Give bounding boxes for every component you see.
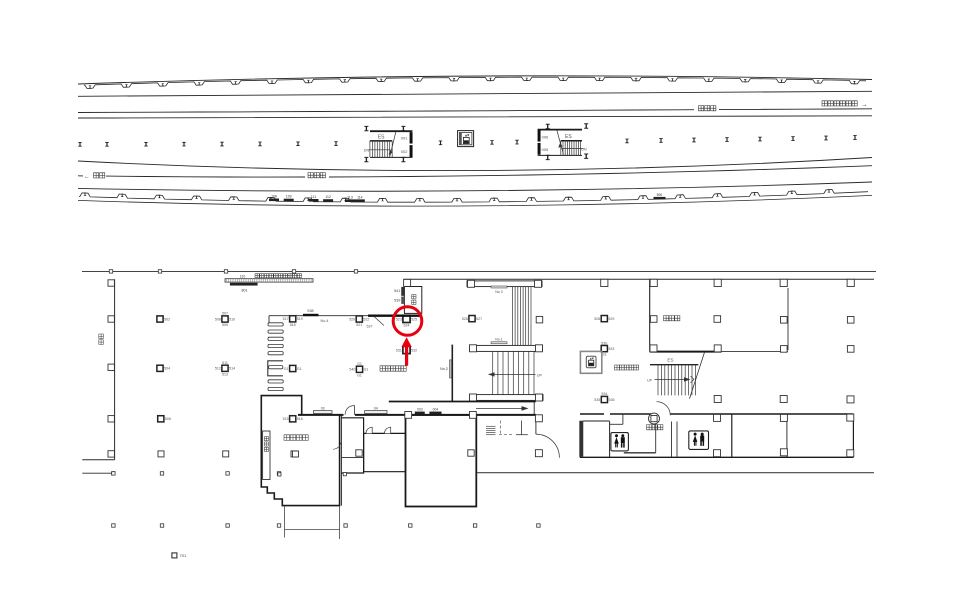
svg-text:529: 529 [608, 317, 614, 321]
svg-text:G1: G1 [602, 353, 607, 357]
svg-text:521: 521 [356, 323, 362, 327]
svg-text:506: 506 [165, 417, 171, 421]
svg-text:ES: ES [565, 134, 572, 140]
svg-text:507: 507 [222, 312, 228, 316]
svg-text:513: 513 [222, 372, 228, 376]
svg-text:004: 004 [433, 407, 439, 411]
svg-text:G1: G1 [357, 362, 362, 366]
svg-text:112: 112 [325, 195, 331, 199]
svg-text:G1: G1 [364, 368, 369, 372]
svg-text:517: 517 [283, 317, 289, 321]
svg-text:539: 539 [394, 298, 400, 302]
svg-text:UP: UP [647, 378, 653, 382]
svg-text:531: 531 [396, 348, 402, 352]
svg-text:801: 801 [242, 289, 248, 293]
svg-text:UP: UP [537, 373, 543, 377]
svg-text:512: 512 [215, 367, 221, 371]
svg-text:114: 114 [357, 195, 363, 199]
svg-text:527: 527 [476, 317, 482, 321]
svg-text:510: 510 [229, 317, 235, 321]
svg-text:003: 003 [417, 407, 423, 411]
svg-text:526: 526 [462, 317, 468, 321]
svg-text:002: 002 [401, 149, 408, 154]
svg-text:DN: DN [364, 149, 370, 153]
svg-text:533: 533 [608, 347, 614, 351]
svg-text:G1: G1 [357, 373, 362, 377]
svg-text:524: 524 [404, 324, 410, 328]
svg-text:540: 540 [349, 368, 355, 372]
svg-text:590: 590 [657, 193, 663, 197]
svg-text:504: 504 [164, 367, 170, 371]
svg-text:ES: ES [378, 135, 385, 141]
svg-text:001: 001 [401, 136, 408, 141]
svg-text:No.4: No.4 [321, 319, 329, 323]
svg-text:No.1: No.1 [495, 338, 503, 342]
svg-text:535: 535 [594, 398, 600, 402]
svg-text:536: 536 [609, 398, 615, 402]
svg-text:←: ← [84, 174, 90, 180]
svg-text:G1: G1 [297, 367, 302, 371]
svg-text:516: 516 [297, 417, 303, 421]
svg-text:515: 515 [283, 417, 289, 421]
svg-text:541: 541 [394, 289, 400, 293]
svg-text:113: 113 [347, 195, 353, 199]
svg-text:108: 108 [271, 195, 277, 199]
svg-text:03: 03 [321, 406, 325, 410]
svg-text:538: 538 [307, 309, 313, 313]
svg-text:537: 537 [367, 325, 373, 329]
svg-text:509: 509 [222, 323, 228, 327]
svg-text:530: 530 [601, 341, 607, 345]
svg-text:532: 532 [411, 348, 417, 352]
svg-text:No.2: No.2 [440, 367, 448, 371]
svg-text:111: 111 [311, 195, 316, 199]
svg-text:518: 518 [290, 323, 296, 327]
svg-text:04: 04 [374, 406, 378, 410]
svg-text:005: 005 [542, 147, 549, 152]
svg-text:DN: DN [581, 148, 587, 152]
svg-text:534: 534 [601, 392, 607, 396]
svg-text:523: 523 [396, 317, 402, 321]
svg-text:528: 528 [594, 317, 600, 321]
svg-text:520: 520 [349, 317, 355, 321]
svg-text:109: 109 [286, 195, 292, 199]
svg-text:G1: G1 [284, 367, 289, 371]
svg-text:519: 519 [297, 317, 303, 321]
svg-text:525: 525 [411, 317, 417, 321]
svg-text:502: 502 [164, 317, 170, 321]
svg-text:ES: ES [667, 357, 673, 362]
svg-text:514: 514 [229, 367, 235, 371]
svg-text:701: 701 [180, 553, 187, 558]
svg-text:006: 006 [542, 134, 549, 139]
svg-text:No.3: No.3 [495, 290, 503, 294]
svg-text:110: 110 [240, 274, 246, 278]
svg-text:→: → [861, 101, 868, 108]
svg-text:522: 522 [363, 317, 369, 321]
svg-text:511: 511 [222, 361, 228, 365]
svg-text:508: 508 [215, 317, 221, 321]
